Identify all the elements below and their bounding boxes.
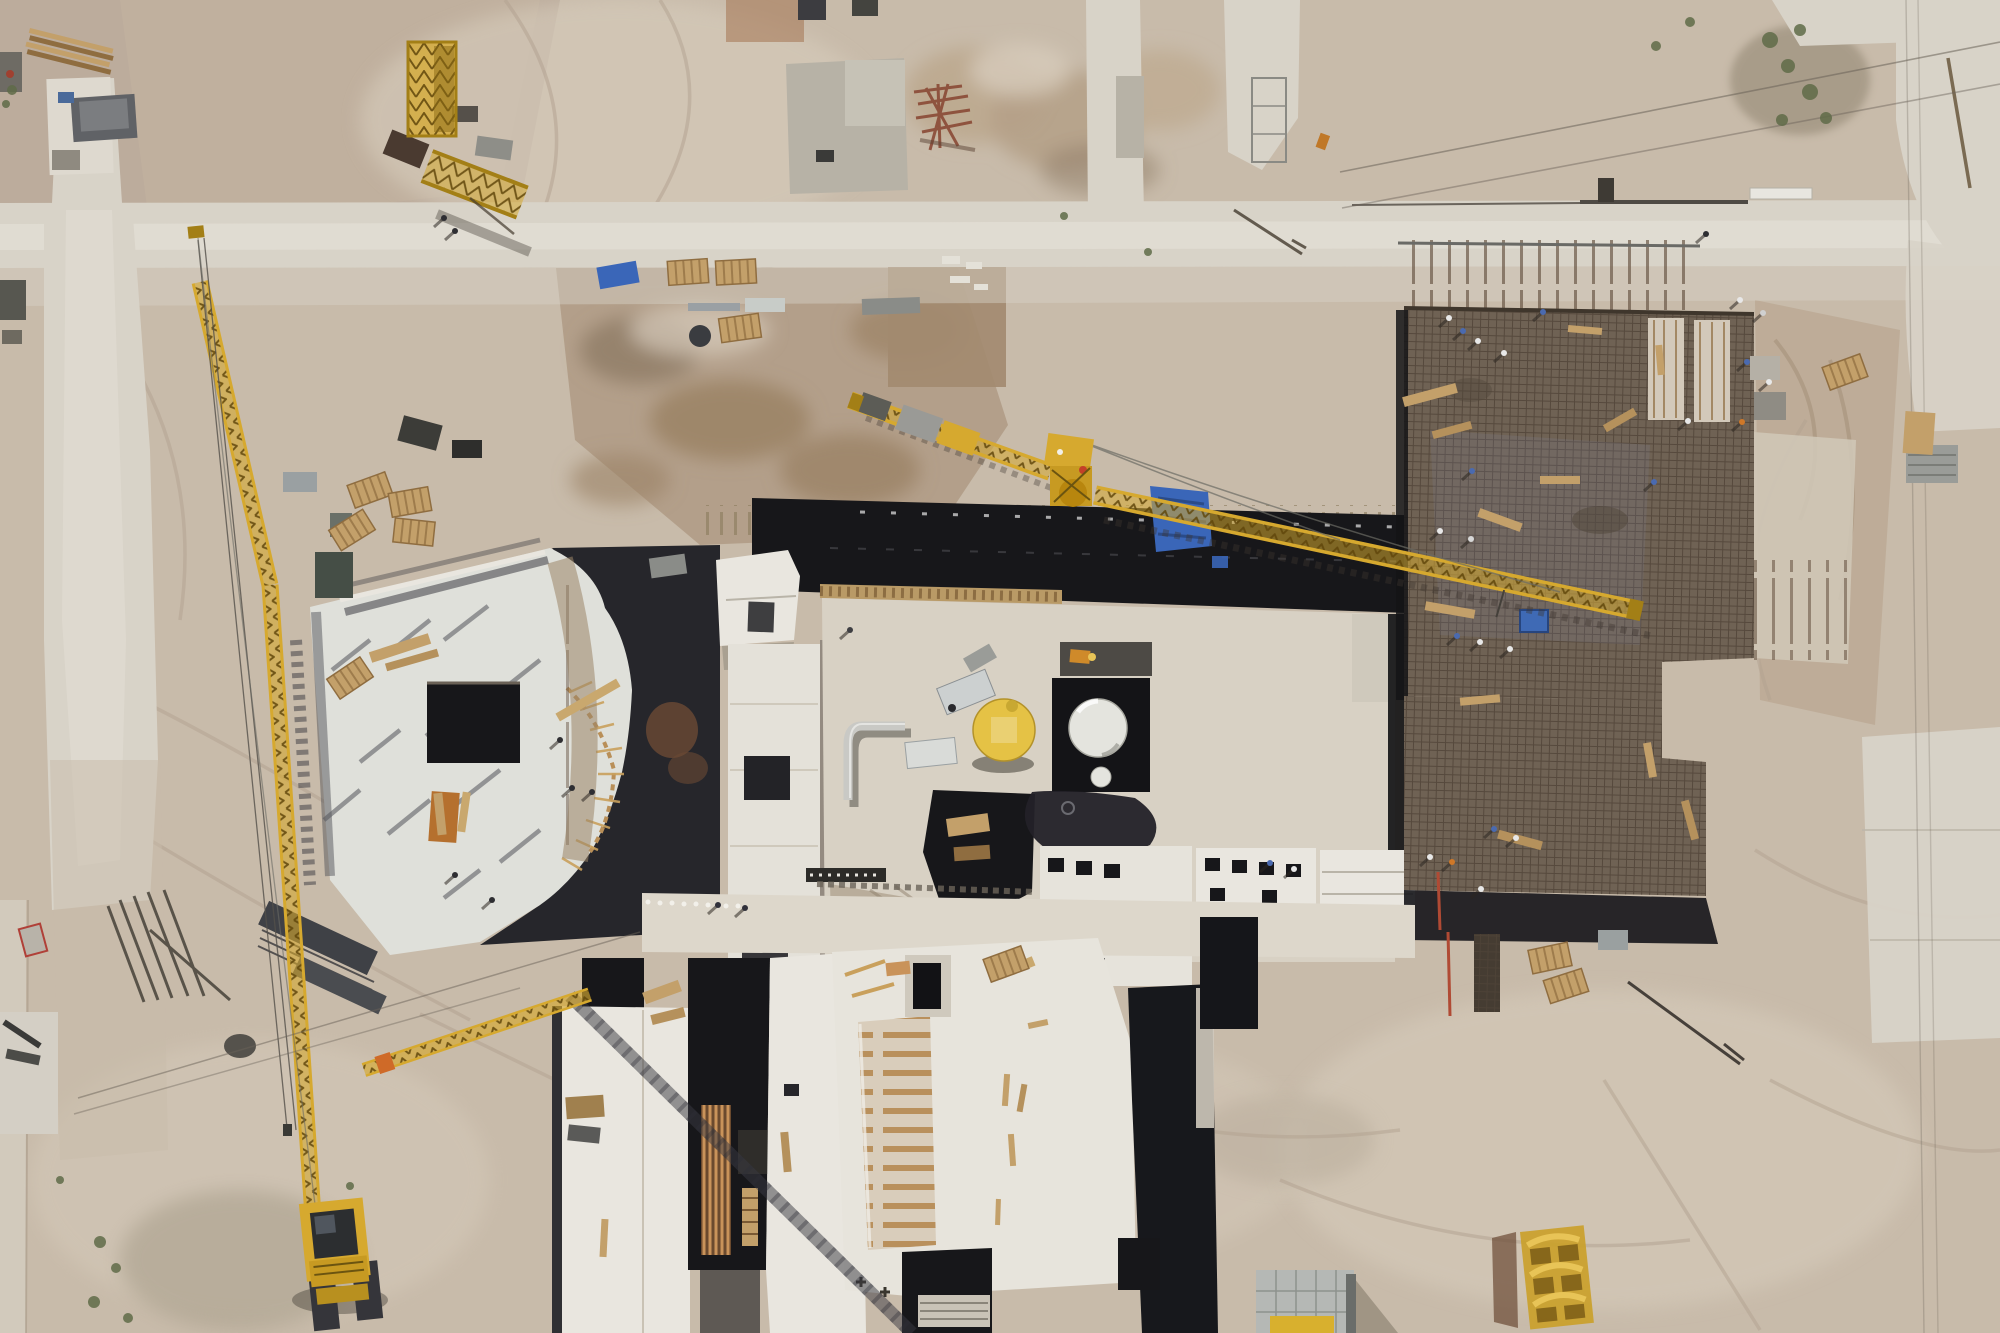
yellow-barrier-stack xyxy=(1520,1225,1594,1329)
aerial-construction-site-photo xyxy=(0,0,2000,1333)
tank-shadow xyxy=(1025,791,1156,855)
formwork-props xyxy=(1398,240,1698,310)
hook-block xyxy=(283,1124,292,1136)
turntable xyxy=(1044,433,1094,507)
silver-tank-small xyxy=(745,298,785,312)
cable-roll xyxy=(689,325,711,347)
orange-equipment xyxy=(1069,649,1090,664)
dark-tarp-stack xyxy=(315,552,353,598)
white-storage-tank xyxy=(1069,699,1127,757)
slab-opening xyxy=(427,683,520,763)
white-pipe-section xyxy=(1750,188,1812,199)
deck-shadow xyxy=(1404,890,1718,944)
small-pad-bottom-left xyxy=(0,1012,58,1134)
blue-item xyxy=(58,92,74,103)
small-dome xyxy=(1091,767,1111,787)
boom-tip xyxy=(187,225,204,239)
